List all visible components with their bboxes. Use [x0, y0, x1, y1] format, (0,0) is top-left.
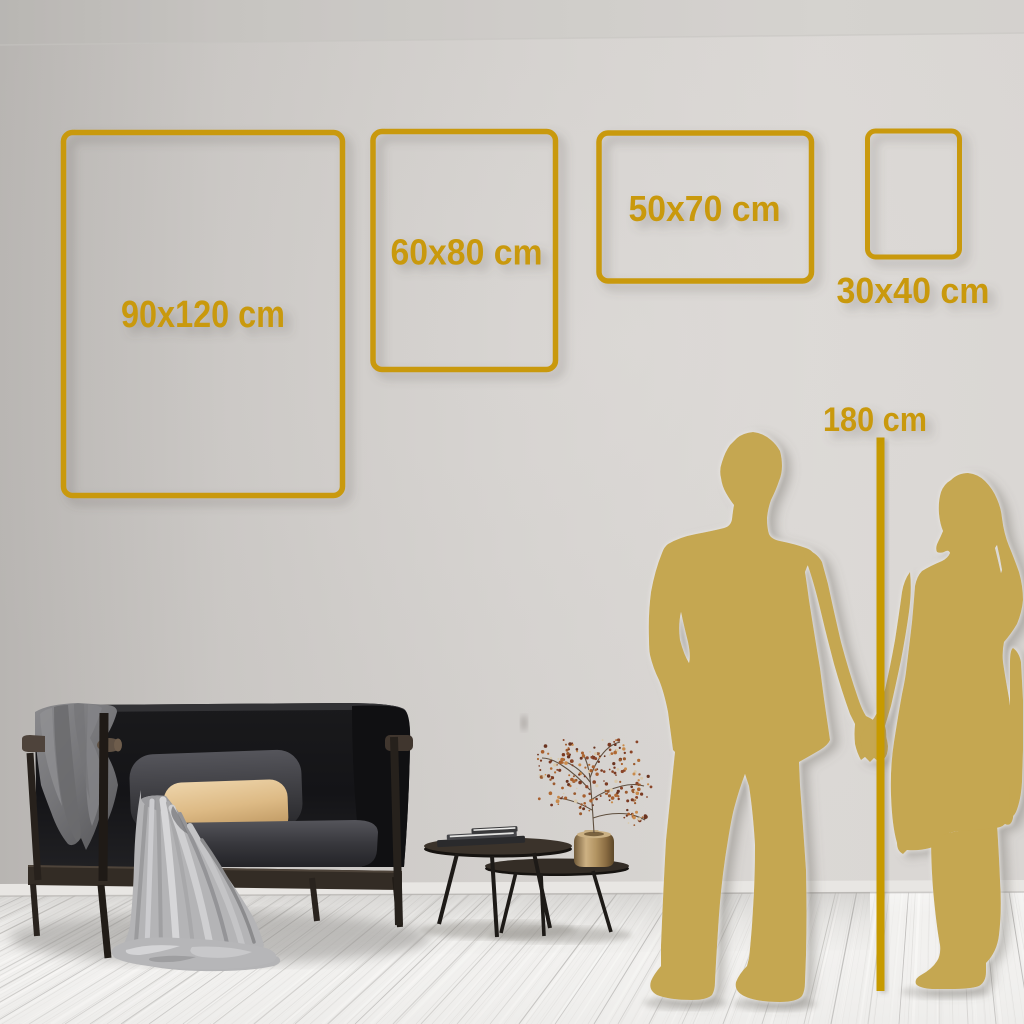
svg-text:60x80 cm: 60x80 cm: [391, 232, 543, 273]
svg-text:180 cm: 180 cm: [823, 401, 927, 439]
svg-text:90x120 cm: 90x120 cm: [121, 294, 285, 336]
svg-text:50x70 cm: 50x70 cm: [629, 188, 781, 229]
svg-text:30x40 cm: 30x40 cm: [837, 270, 990, 311]
